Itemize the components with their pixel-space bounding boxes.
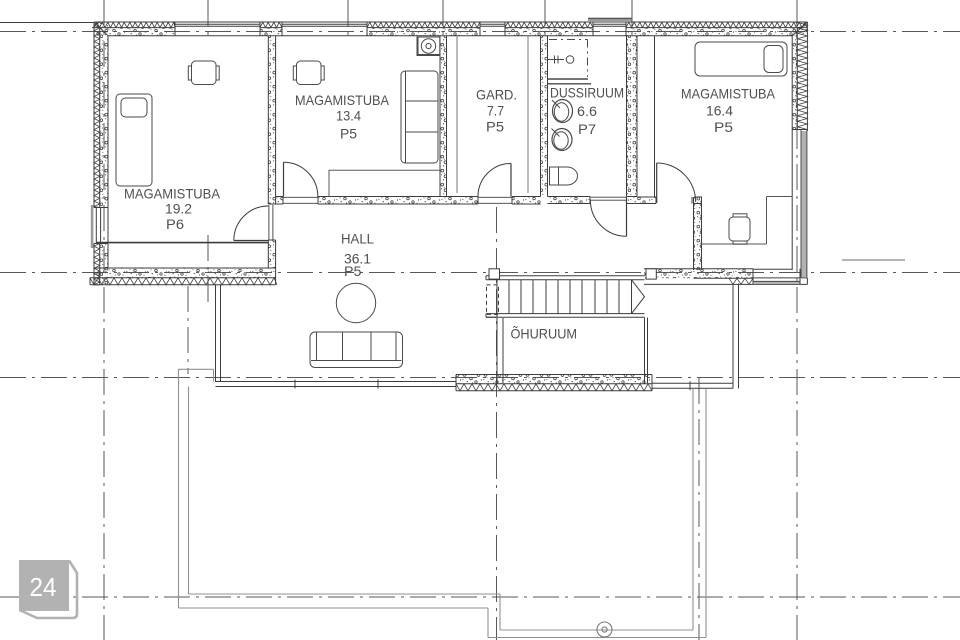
svg-text:P5: P5: [714, 119, 733, 135]
svg-text:GARD.: GARD.: [476, 87, 517, 103]
svg-text:MAGAMISTUBA: MAGAMISTUBA: [681, 86, 776, 102]
svg-text:P5: P5: [344, 263, 362, 279]
svg-text:P5: P5: [340, 126, 357, 142]
svg-text:DUSSIRUUM: DUSSIRUUM: [550, 85, 624, 101]
svg-text:16.4: 16.4: [706, 103, 733, 119]
svg-text:13.4: 13.4: [336, 108, 361, 124]
svg-text:7.7: 7.7: [487, 103, 504, 119]
svg-text:P5: P5: [486, 119, 504, 135]
svg-text:6.6: 6.6: [577, 103, 597, 119]
svg-text:P7: P7: [578, 121, 596, 137]
svg-text:P6: P6: [166, 216, 184, 232]
svg-text:24: 24: [30, 572, 57, 602]
svg-text:HALL: HALL: [341, 231, 374, 247]
svg-text:ÕHURUUM: ÕHURUUM: [511, 326, 578, 342]
svg-text:MAGAMISTUBA: MAGAMISTUBA: [295, 92, 390, 108]
svg-text:19.2: 19.2: [165, 201, 192, 217]
svg-text:MAGAMISTUBA: MAGAMISTUBA: [124, 186, 221, 202]
